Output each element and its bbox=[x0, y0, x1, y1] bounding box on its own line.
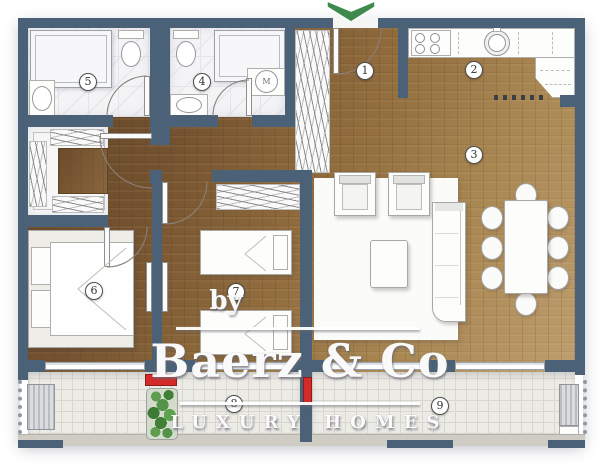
wall bbox=[150, 115, 170, 145]
closet-hanging-rail-left bbox=[29, 141, 47, 207]
bed-pillow bbox=[31, 290, 51, 328]
wall bbox=[423, 360, 455, 372]
bed-pillow bbox=[273, 315, 288, 350]
sofa-back-line bbox=[460, 211, 461, 305]
wall bbox=[18, 360, 45, 372]
sliding-door-panel bbox=[146, 262, 152, 312]
closet-hanging-rail-bottom bbox=[52, 196, 104, 213]
red-marker bbox=[303, 377, 312, 405]
bathroom4-door-leaf bbox=[246, 78, 252, 116]
room-number: 9 bbox=[437, 399, 444, 412]
dining-chair bbox=[547, 266, 569, 290]
wall bbox=[18, 115, 113, 127]
toilet-tank bbox=[118, 30, 144, 39]
plant bbox=[146, 388, 178, 440]
wall bbox=[18, 215, 108, 227]
balcony-edge-dark-left bbox=[18, 440, 63, 448]
wall bbox=[170, 115, 218, 127]
room-number: 1 bbox=[362, 64, 369, 77]
room-label-balcony-8: 8 bbox=[225, 395, 243, 413]
wall bbox=[150, 18, 170, 117]
kitchen-threshold-dots bbox=[494, 95, 548, 100]
wall bbox=[378, 18, 585, 28]
dining-chair bbox=[481, 206, 503, 230]
coffee-table bbox=[370, 240, 408, 288]
closet-floor-opening bbox=[58, 148, 108, 194]
toilet-tank bbox=[173, 30, 199, 39]
wall bbox=[300, 170, 312, 372]
room-number: 6 bbox=[91, 284, 98, 297]
room-number: 3 bbox=[471, 148, 478, 161]
closet-hanging-rail-top bbox=[50, 129, 104, 146]
toilet-bowl bbox=[176, 41, 196, 67]
wall bbox=[145, 360, 195, 372]
room-number: 4 bbox=[199, 75, 206, 88]
wall bbox=[545, 360, 585, 372]
sofa-cushion-line bbox=[435, 233, 458, 234]
dining-chair bbox=[481, 236, 503, 260]
dining-chair bbox=[547, 206, 569, 230]
window bbox=[455, 362, 545, 370]
window bbox=[45, 362, 145, 370]
room-label-bathroom-5: 5 bbox=[79, 73, 97, 91]
bed-pillow bbox=[31, 247, 51, 285]
sofa-cushion-line bbox=[435, 297, 458, 298]
dining-chair bbox=[515, 292, 537, 316]
wall bbox=[152, 182, 162, 372]
bedroom6-door-leaf bbox=[104, 227, 110, 267]
kitchen-counter-divider bbox=[518, 32, 519, 54]
wall bbox=[212, 170, 312, 182]
bathroom-sink bbox=[176, 97, 202, 113]
armchair-seat bbox=[396, 184, 422, 210]
stove-burner bbox=[415, 44, 425, 54]
stove-burner bbox=[430, 33, 440, 43]
wall bbox=[560, 95, 585, 107]
entry-door-leaf bbox=[333, 28, 339, 74]
bedroom7-wardrobe bbox=[216, 184, 300, 210]
armchair-back bbox=[393, 175, 425, 184]
wall bbox=[18, 18, 28, 380]
armchair-back bbox=[339, 175, 371, 184]
kitchen-counter-divider bbox=[545, 84, 571, 85]
room-label-bedroom-7: 7 bbox=[227, 283, 245, 301]
armchair-seat bbox=[342, 184, 368, 210]
window bbox=[195, 362, 290, 370]
sofa-cushion-line bbox=[435, 265, 458, 266]
balcony-edge-dark-right bbox=[548, 440, 585, 448]
room-label-kitchen: 2 bbox=[465, 61, 483, 79]
dining-chair bbox=[547, 236, 569, 260]
bed-pillow bbox=[273, 235, 288, 270]
room-number: 8 bbox=[231, 397, 238, 410]
kitchen-counter-divider bbox=[458, 32, 459, 54]
window bbox=[330, 362, 423, 370]
hall-wardrobe bbox=[295, 30, 330, 173]
red-marker bbox=[145, 374, 177, 386]
hallway-door-leaf bbox=[100, 133, 152, 139]
room-label-bedroom-6: 6 bbox=[85, 282, 103, 300]
wall bbox=[252, 115, 295, 127]
washing-machine-drum: M bbox=[255, 70, 278, 93]
room-number: 5 bbox=[85, 75, 92, 88]
wall bbox=[398, 18, 408, 98]
bedroom7-door-leaf bbox=[162, 182, 168, 224]
floor-plan: M bbox=[0, 0, 600, 468]
wall bbox=[285, 18, 295, 127]
room-label-entrance-hall: 1 bbox=[356, 62, 374, 80]
sofa bbox=[432, 202, 466, 322]
room-label-bathroom-4: 4 bbox=[193, 73, 211, 91]
bathroom-sink bbox=[32, 86, 52, 111]
sliding-door-panel bbox=[162, 262, 168, 312]
wall bbox=[290, 360, 330, 372]
ac-unit-panel bbox=[559, 426, 579, 435]
bathroom5-door-leaf bbox=[144, 76, 150, 116]
room-number: 2 bbox=[471, 63, 478, 76]
balcony-edge-dark-center bbox=[387, 440, 453, 448]
kitchen-sink-basin bbox=[488, 34, 506, 52]
wall bbox=[575, 18, 585, 375]
room-label-balcony-9: 9 bbox=[431, 397, 449, 415]
entry-threshold bbox=[333, 18, 378, 28]
stove-burner bbox=[430, 44, 440, 54]
armchair bbox=[388, 172, 430, 216]
armchair bbox=[334, 172, 376, 216]
ac-unit bbox=[27, 384, 55, 430]
dining-chair bbox=[481, 266, 503, 290]
kitchen-counter-divider bbox=[552, 32, 553, 54]
ac-unit bbox=[559, 384, 579, 426]
stove-burner bbox=[415, 33, 425, 43]
washing-machine-label: M bbox=[262, 77, 270, 86]
room-label-living-room: 3 bbox=[465, 146, 483, 164]
room-number: 7 bbox=[233, 285, 240, 298]
kitchen-counter-divider bbox=[540, 70, 570, 71]
sofa-arm-top bbox=[435, 203, 463, 211]
toilet-bowl bbox=[121, 41, 141, 67]
dining-table bbox=[504, 200, 548, 294]
